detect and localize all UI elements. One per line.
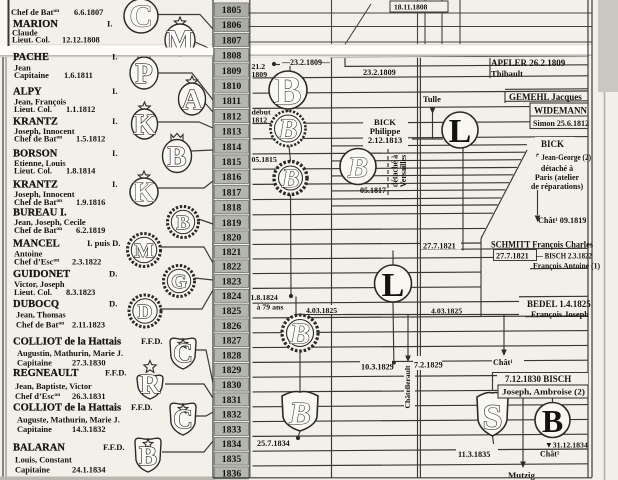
svg-text:7.2.1829: 7.2.1829 [414,361,443,370]
svg-text:2.11.1823: 2.11.1823 [72,321,105,330]
svg-text:B: B [347,151,368,184]
svg-text:11.3.1835: 11.3.1835 [458,450,490,459]
svg-text:05.1815: 05.1815 [252,155,277,164]
svg-text:A: A [182,85,203,116]
svg-text:1807: 1807 [222,35,242,46]
svg-text:K: K [133,178,155,209]
svg-text:C: C [129,0,152,34]
svg-text:1.6.1811: 1.6.1811 [64,71,93,80]
svg-text:B: B [289,318,310,351]
svg-text:ALPY: ALPY [13,87,42,98]
svg-text:B: B [278,115,298,146]
svg-text:S: S [482,397,502,437]
svg-text:1824: 1824 [222,291,242,302]
svg-text:27.7.1821: 27.7.1821 [423,242,456,251]
svg-text:MANCEL: MANCEL [13,239,60,250]
svg-text:détaché à: détaché à [541,164,573,173]
svg-text:BUREAU I.: BUREAU I. [13,208,67,219]
svg-text:1.8.1814: 1.8.1814 [66,167,96,176]
svg-text:Chef de Baton: Chef de Baton [14,226,62,235]
svg-text:Chef de Baton: Chef de Baton [11,8,59,17]
svg-text:1831: 1831 [222,395,242,406]
svg-text:COLLIOT de la Hattais: COLLIOT de la Hattais [13,337,121,348]
svg-text:APFLER 26.2.1809: APFLER 26.2.1809 [491,58,566,68]
svg-text:1809: 1809 [252,70,268,79]
svg-text:L: L [449,113,472,150]
svg-text:L: L [382,267,405,304]
svg-text:B: B [275,68,302,113]
svg-text:GEMEHL Jacques: GEMEHL Jacques [509,92,582,102]
svg-text:1834: 1834 [222,439,242,450]
svg-text:à 79 ans: à 79 ans [257,303,284,312]
svg-text:REGNEAULT: REGNEAULT [13,368,79,379]
svg-text:R: R [140,369,160,399]
svg-text:23.2.1809: 23.2.1809 [363,68,396,77]
svg-text:I.: I. [107,19,113,29]
svg-text:Lieut. Col.: Lieut. Col. [14,105,52,114]
svg-text:▼31.12.1834: ▼31.12.1834 [545,441,588,450]
svg-text:B: B [168,142,187,173]
svg-text:1833: 1833 [222,424,242,435]
svg-text:26.3.1831: 26.3.1831 [72,392,106,401]
svg-text:BORSON: BORSON [13,149,58,160]
svg-text:GUIDONET: GUIDONET [13,269,70,280]
svg-text:François Joseph: François Joseph [531,310,589,319]
svg-text:M: M [135,240,154,262]
svg-text:Joseph, Ambroise (2): Joseph, Ambroise (2) [502,388,585,397]
svg-text:Capitaine: Capitaine [15,466,50,475]
svg-text:Auguste, Mathurin, Marie J.: Auguste, Mathurin, Marie J. [17,416,120,425]
svg-text:I.: I. [112,52,118,62]
svg-text:Chât¹ 09.1819: Chât¹ 09.1819 [538,216,586,225]
svg-text:Louis, Constant: Louis, Constant [15,456,72,465]
svg-text:COLLIOT de la Hattais: COLLIOT de la Hattais [13,403,121,414]
svg-text:1.8.1824: 1.8.1824 [251,293,278,302]
svg-text:Jean, Thomas: Jean, Thomas [16,311,66,320]
svg-text:D.: D. [109,299,117,309]
svg-text:1814: 1814 [222,142,242,153]
svg-text:Chef d’Escon: Chef d’Escon [14,258,59,267]
svg-text:1810: 1810 [222,81,242,92]
svg-text:1806: 1806 [222,20,242,31]
svg-text:Chef de Baton: Chef de Baton [16,321,64,330]
svg-text:I. puis D.: I. puis D. [87,238,120,248]
svg-text:6.6.1807: 6.6.1807 [74,8,103,17]
svg-text:14.3.1832: 14.3.1832 [72,425,106,434]
svg-text:27.7.1821: 27.7.1821 [496,252,529,261]
svg-text:1835: 1835 [222,454,242,465]
svg-text:Lieut. Col.: Lieut. Col. [14,288,52,297]
svg-text:B: B [542,403,563,439]
svg-text:Versailles: Versailles [399,155,408,188]
svg-text:Paris (atelier: Paris (atelier [535,173,580,182]
svg-text:4.03.1825: 4.03.1825 [431,307,462,316]
svg-text:2.3.1822: 2.3.1822 [72,258,101,267]
svg-text:1827: 1827 [222,336,242,347]
svg-text:C: C [173,338,193,368]
svg-text:1816: 1816 [222,172,242,183]
svg-text:Capitaine: Capitaine [17,359,52,368]
svg-text:François Antoine (1): François Antoine (1) [533,262,600,271]
svg-text:1805: 1805 [222,5,242,16]
svg-text:1829: 1829 [222,365,242,376]
svg-text:1818: 1818 [222,203,242,214]
svg-text:PACHE: PACHE [13,52,49,63]
svg-text:BEDEL 1.4.1825: BEDEL 1.4.1825 [527,299,591,309]
svg-text:1828: 1828 [222,350,242,361]
svg-text:1817: 1817 [222,187,242,198]
svg-text:Augustin, Mathurin, Marie J.: Augustin, Mathurin, Marie J. [17,349,123,358]
svg-text:Lieut. Col.: Lieut. Col. [12,36,50,45]
svg-text:KRANTZ: KRANTZ [13,180,58,191]
svg-text:F.F.D.: F.F.D. [103,442,125,452]
svg-text:KRANTZ: KRANTZ [13,117,58,128]
svg-text:1812: 1812 [222,111,242,122]
svg-text:Chât¹: Chât¹ [493,358,513,367]
svg-text:Thibault: Thibault [491,69,523,79]
svg-text:1832: 1832 [222,410,242,421]
svg-text:B: B [139,441,157,471]
svg-text:24.1.1834: 24.1.1834 [72,466,106,475]
svg-text:6.2.1819: 6.2.1819 [76,226,105,235]
svg-text:1813: 1813 [222,127,242,138]
svg-text:B: B [288,395,310,431]
svg-text:I.: I. [112,86,118,96]
svg-text:05.1817: 05.1817 [360,186,386,195]
svg-text:Chef de Baton: Chef de Baton [14,135,62,144]
svg-text:25.7.1834: 25.7.1834 [257,439,290,448]
svg-text:Lieut. Col.: Lieut. Col. [14,167,52,176]
svg-text:I.: I. [112,179,118,189]
svg-text:Tulle: Tulle [423,95,441,104]
svg-text:Chef d’Escon: Chef d’Escon [15,392,60,401]
svg-text:Capitaine: Capitaine [17,425,52,434]
svg-text:1.1.1812: 1.1.1812 [66,105,95,114]
svg-text:1812: 1812 [252,116,268,125]
svg-text:WIDEMANN: WIDEMANN [534,106,587,116]
svg-text:1819: 1819 [222,218,242,229]
svg-text:Simon 25.6.1812: Simon 25.6.1812 [533,119,589,128]
svg-text:I.: I. [112,148,118,158]
svg-text:Chef de Baton: Chef de Baton [14,198,62,207]
svg-text:1.9.1816: 1.9.1816 [76,198,105,207]
svg-text:BALARAN: BALARAN [13,443,65,454]
svg-text:D.: D. [109,269,117,279]
svg-text:B: B [176,212,189,234]
svg-text:Chât¹: Chât¹ [540,450,560,459]
svg-text:F.F.D.: F.F.D. [131,402,153,412]
svg-text:I.: I. [112,116,118,126]
svg-text:1823: 1823 [222,276,242,287]
svg-text:7.12.1830 BISCH: 7.12.1830 BISCH [505,374,571,384]
svg-text:SCHMITT François Charles: SCHMITT François Charles [491,240,593,250]
svg-text:G: G [171,271,187,293]
svg-text:—23.2.1809—: —23.2.1809— [281,58,331,67]
svg-text:— BISCH 2.3.1822: — BISCH 2.3.1822 [535,251,592,261]
svg-text:Châtellerault: Châtellerault [403,365,412,408]
svg-text:D: D [138,301,152,323]
svg-text:B: B [281,164,299,193]
svg-text:1830: 1830 [222,380,242,391]
svg-text:1808: 1808 [222,51,242,62]
svg-text:⌜ Jean-George (2): ⌜ Jean-George (2) [536,153,591,162]
svg-text:2.12.1813: 2.12.1813 [368,135,402,145]
svg-text:27.3.1830: 27.3.1830 [72,359,106,368]
svg-text:1826: 1826 [222,321,242,332]
svg-text:4.03.1825: 4.03.1825 [306,306,337,315]
svg-text:P: P [135,59,152,90]
svg-text:C: C [173,404,193,434]
svg-text:BICK: BICK [541,139,564,149]
svg-text:F.F.D.: F.F.D. [105,368,127,378]
svg-text:1825: 1825 [222,306,242,317]
svg-text:K: K [134,110,156,141]
svg-text:Mutzig: Mutzig [508,470,535,480]
svg-text:1821: 1821 [222,247,242,258]
svg-text:12.12.1808: 12.12.1808 [62,36,100,45]
svg-text:F.F.D.: F.F.D. [141,336,163,346]
svg-text:1820: 1820 [222,233,242,244]
svg-text:1815: 1815 [222,157,242,168]
svg-text:18.11.1808: 18.11.1808 [394,3,428,12]
svg-text:1809: 1809 [222,66,242,77]
svg-text:1.5.1812: 1.5.1812 [76,135,105,144]
svg-text:1822: 1822 [222,262,242,273]
svg-text:DUBOCQ: DUBOCQ [13,299,59,310]
svg-text:8.3.1823: 8.3.1823 [66,288,95,297]
svg-text:de réparations): de réparations) [531,182,584,191]
svg-text:Jean, Baptiste, Victor: Jean, Baptiste, Victor [15,382,92,391]
svg-text:1811: 1811 [222,96,241,107]
svg-text:10.3.1829: 10.3.1829 [361,363,394,372]
svg-text:Capitaine: Capitaine [14,71,49,80]
